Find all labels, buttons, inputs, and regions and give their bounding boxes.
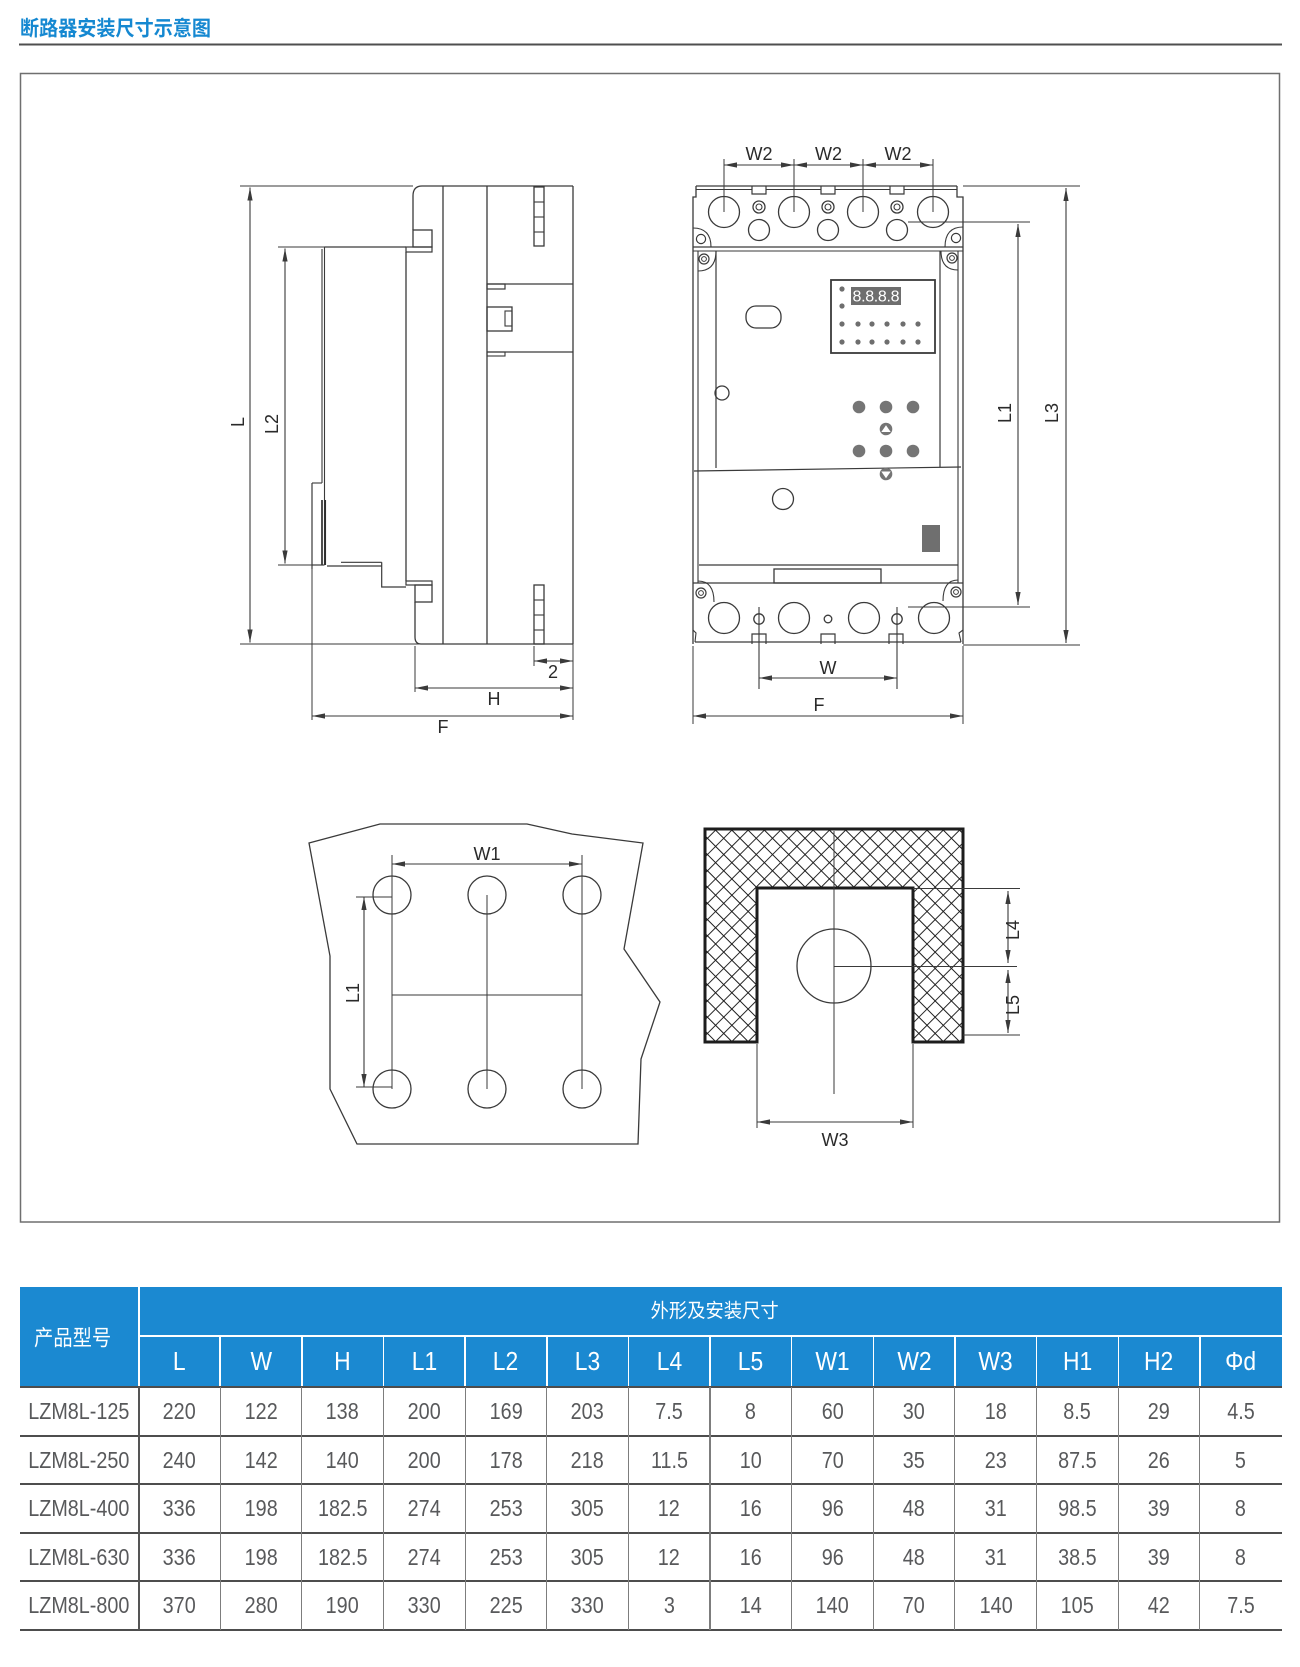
svg-text:L3: L3	[1042, 403, 1062, 423]
svg-text:H: H	[488, 689, 501, 709]
svg-text:F: F	[814, 695, 825, 715]
svg-text:L1: L1	[995, 403, 1015, 423]
svg-text:W2: W2	[815, 144, 842, 164]
svg-text:2: 2	[548, 662, 558, 682]
svg-text:L5: L5	[1003, 995, 1023, 1015]
svg-text:W1: W1	[474, 844, 501, 864]
svg-text:L4: L4	[1003, 920, 1023, 940]
svg-text:W3: W3	[822, 1130, 849, 1150]
svg-text:F: F	[438, 717, 449, 737]
svg-text:W: W	[820, 658, 837, 678]
svg-text:L1: L1	[343, 983, 363, 1003]
svg-text:W2: W2	[885, 144, 912, 164]
svg-text:L2: L2	[262, 414, 282, 434]
svg-text:L: L	[228, 417, 248, 427]
svg-text:W2: W2	[746, 144, 773, 164]
svg-text:8.8.8.8: 8.8.8.8	[853, 289, 900, 306]
